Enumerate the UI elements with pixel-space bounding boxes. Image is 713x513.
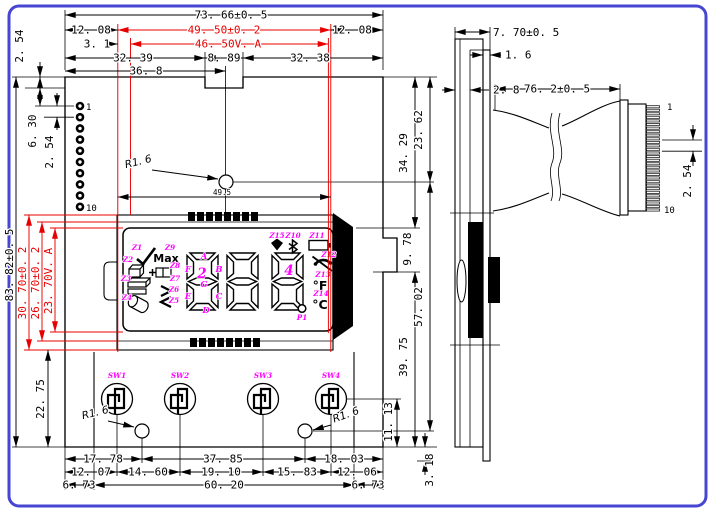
seg-label-e: E — [184, 292, 192, 302]
zone-label-z3: Z3 — [120, 274, 131, 283]
dim-notch-left: 32. 39 — [113, 52, 153, 65]
dim-va-height: 23. 70V. A — [42, 248, 55, 315]
dim-tail: 3. 18 — [423, 453, 436, 486]
dim-edge-right: 12. 08 — [332, 24, 372, 37]
dim-lcd-height: 30. 70±0. 2 — [16, 247, 29, 320]
dim-bezel-lip: 2. 8 — [493, 84, 520, 97]
sw3-label: SW3 — [254, 371, 272, 380]
zone-label-z5: Z5 — [168, 296, 179, 305]
hole-top — [219, 175, 233, 189]
hole-bottom-left — [135, 424, 149, 438]
dim-lcd-height2: 26. 70±0. 2 — [29, 247, 42, 320]
pin-10-label: 10 — [86, 204, 97, 214]
seg-label-d: D — [201, 306, 210, 316]
zone-label-z1: Z1 — [131, 243, 142, 252]
seg-label-c: C — [216, 292, 223, 302]
zone-label-z9: Z9 — [164, 243, 175, 252]
connector-pins — [646, 105, 661, 212]
zone-label-z4: Z4 — [121, 293, 132, 302]
seg-label-f: F — [184, 265, 192, 275]
dim-row3-b: 60. 20 — [204, 479, 244, 492]
dim-lower-height: 39. 75 — [397, 337, 410, 377]
dim-lcd-width: 49. 50±0. 2 — [188, 24, 261, 37]
dim-overall-height: 83. 82±0. 5 — [3, 229, 16, 302]
pin-1-label: 1 — [86, 103, 91, 113]
dim-display-top: 34. 29 — [397, 133, 410, 173]
connector-pin-10-label: 10 — [664, 206, 675, 216]
dim-notch-right: 32. 38 — [290, 52, 330, 65]
celsius-icon: °C — [312, 297, 327, 312]
dim-row1-a: 17. 78 — [83, 453, 123, 466]
dim-overall-width: 73. 66±0. 5 — [195, 9, 268, 22]
dim-row1-c: 18. 03 — [324, 453, 364, 466]
dim-edge-left: 12. 08 — [71, 24, 111, 37]
sw1-label: SW1 — [108, 371, 126, 380]
dim-thickness: 7. 70±0. 5 — [493, 26, 559, 39]
dim-notch-width: 8. 89 — [207, 52, 240, 65]
dim-row2-e: 12. 06 — [337, 466, 377, 479]
dim-va-offset: 3. 1 — [84, 38, 111, 51]
sw4-label: SW4 — [322, 371, 340, 380]
dim-bottom-height: 22. 75 — [34, 379, 47, 419]
dim-pin-pitch: 2. 54 — [43, 135, 56, 168]
dim-connector-pitch: 2. 54 — [681, 164, 694, 197]
seg-label-a: A — [200, 252, 208, 262]
dim-row2-d: 15. 83 — [277, 466, 317, 479]
zone-label-z11: Z11 — [308, 231, 324, 240]
zone-label-z6: Z6 — [168, 285, 179, 294]
drawing-canvas: 1 10 — [0, 0, 713, 513]
bezel-side-wedge — [333, 213, 353, 340]
switch-sw2 — [165, 384, 196, 415]
dim-hole-top: 23. 62 — [412, 110, 425, 150]
decimal-point — [298, 305, 306, 313]
side-lcd-glass — [468, 222, 483, 338]
dim-pcb-thickness: 1. 6 — [505, 49, 532, 62]
zone-label-z15: Z15 — [268, 231, 284, 240]
digit-1-char: 2 — [196, 266, 206, 282]
dim-hole-span: 57. 02 — [412, 287, 425, 327]
connector-pin-1-label: 1 — [667, 103, 672, 113]
dim-va-width: 46. 50V. A — [195, 38, 262, 51]
side-tab — [488, 257, 500, 303]
dim-switch-height: 11. 13 — [382, 402, 395, 442]
digit-3-char: 4 — [284, 263, 293, 279]
zone-label-z10: Z10 — [284, 231, 300, 240]
zone-label-z7: Z7 — [169, 274, 180, 283]
switch-sw3 — [248, 384, 279, 415]
sw2-label: SW2 — [171, 371, 189, 380]
zone-label-z2: Z2 — [122, 255, 133, 264]
dim-notch-depth: 2. 54 — [13, 29, 26, 62]
dim-row2-b: 14. 60 — [128, 466, 168, 479]
dim-row2-c: 19. 10 — [201, 466, 241, 479]
technical-drawing: 1 10 — [0, 0, 713, 513]
dim-pin-first-y: 6. 30 — [26, 114, 39, 147]
zone-label-z8: Z8 — [169, 261, 180, 270]
dim-display-height: 9. 78 — [401, 232, 414, 265]
seg-label-b: B — [214, 265, 222, 275]
hole-bottom-right — [298, 424, 312, 438]
lcd-display: Max — [120, 228, 337, 331]
dim-cable-length: 76. 2±0. 5 — [524, 83, 590, 96]
side-lens — [457, 260, 466, 302]
dim-hole-x: 36. 8 — [129, 65, 162, 78]
dim-row3-a: 6. 73 — [62, 479, 95, 492]
dim-glass-ref: 49.5 — [213, 188, 231, 197]
zone-label-z14: Z14 — [312, 289, 328, 298]
dim-row1-b: 37. 85 — [203, 453, 243, 466]
dim-row3-c: 6. 73 — [351, 479, 384, 492]
dim-row2-a: 12. 07 — [71, 466, 111, 479]
decimal-label: P1 — [296, 313, 307, 322]
